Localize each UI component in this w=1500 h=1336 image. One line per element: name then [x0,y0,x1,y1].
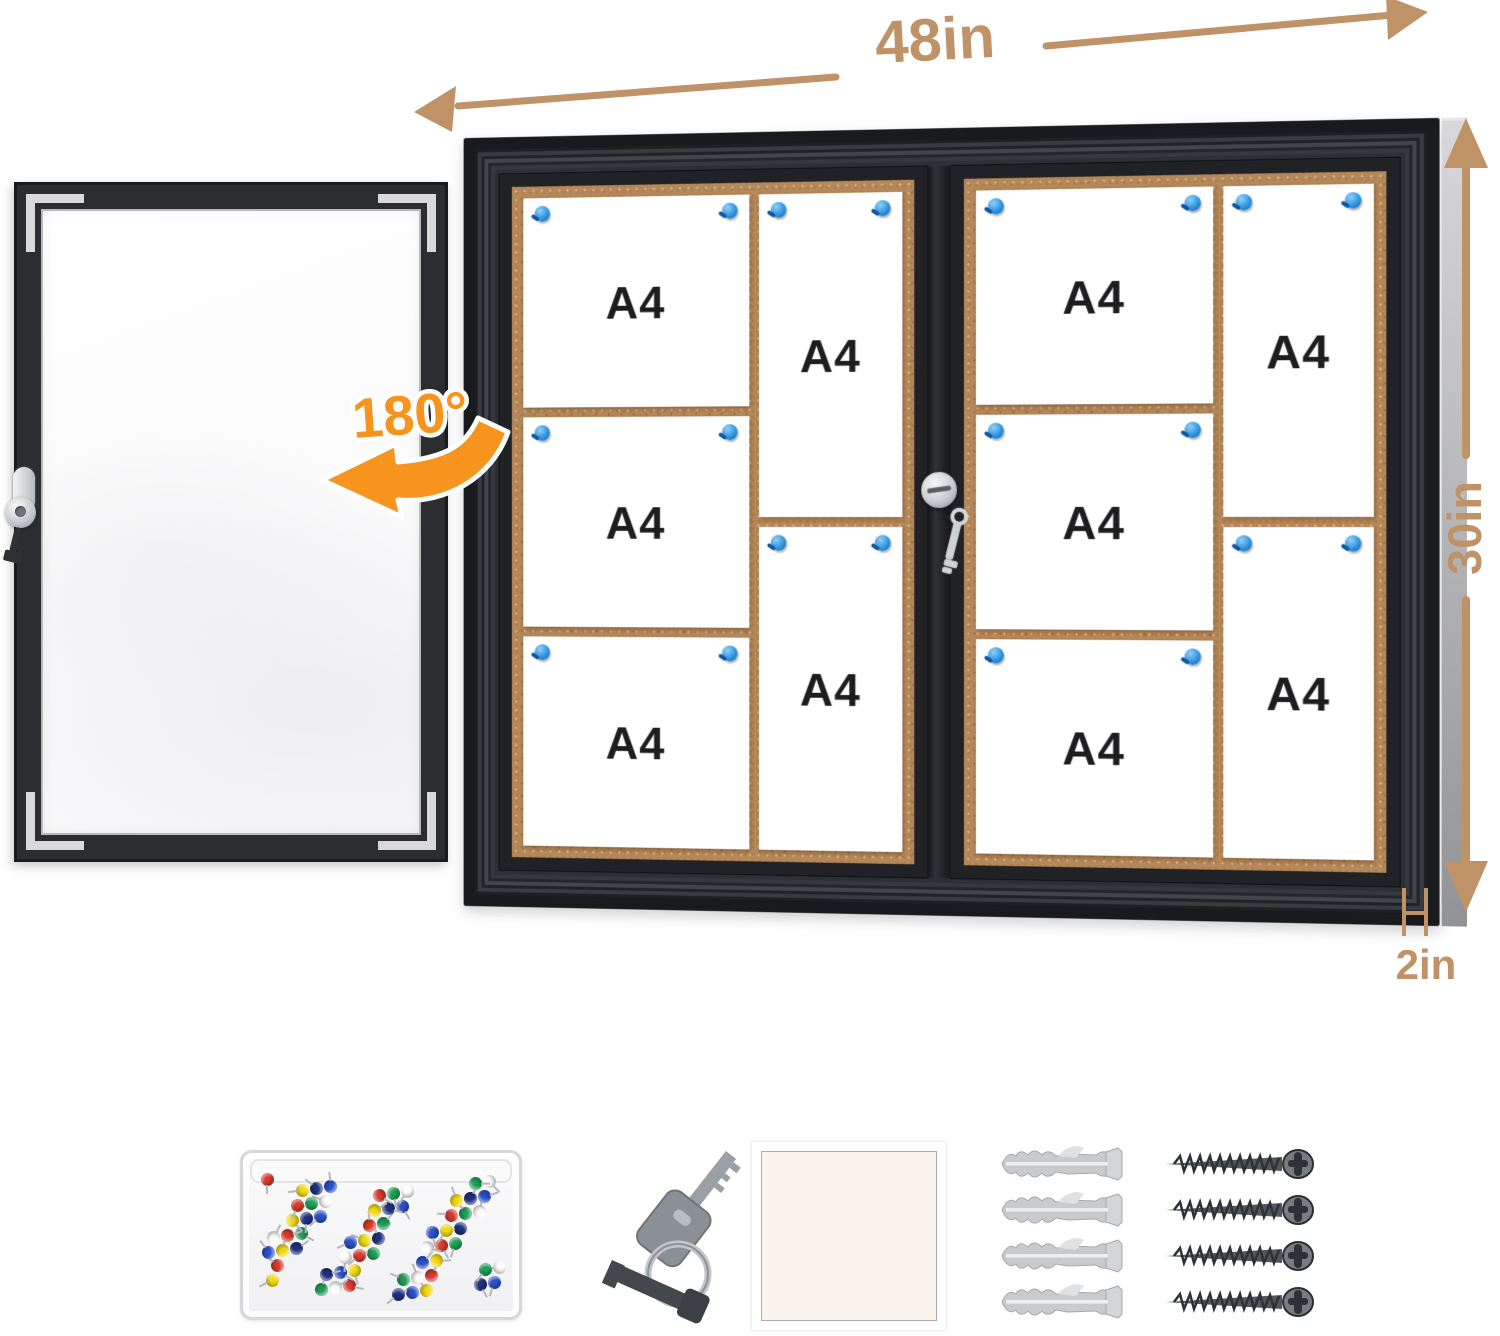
center-door-stile [927,166,951,878]
keys-icon [562,1122,762,1336]
wall-anchor-icon [996,1192,1130,1228]
push-pin-icon [287,1239,305,1257]
a4-paper: A4 [759,192,903,517]
push-pin-icon [423,1267,440,1284]
open-glass-door [14,182,448,862]
push-pin-icon [295,1183,310,1198]
push-pin-icon [405,1285,419,1299]
push-pin-icon [476,1188,493,1205]
paper-column: A4 A4 [1223,184,1374,861]
a4-paper: A4 [976,639,1213,857]
a4-paper: A4 [1223,527,1374,860]
a4-paper: A4 [1223,184,1374,517]
screw-icon [1160,1192,1328,1228]
push-pin-icon [722,645,738,661]
corner-bracket-icon [26,792,84,850]
paper-column: A4 A4 A4 [523,195,749,850]
push-pin-icon [323,1179,337,1193]
product-diagram: A4 A4 A4 [0,0,1500,1336]
push-pin-icon [367,1247,381,1261]
push-pin-icon [317,1193,334,1210]
a4-paper-label: A4 [1266,665,1330,722]
paper-column: A4 A4 [759,192,903,852]
push-pin-icon [326,1278,344,1296]
push-pin-icon [374,1214,392,1232]
push-pin-icon [492,1260,507,1275]
a4-paper: A4 [523,636,749,849]
push-pin-icon [417,1281,435,1299]
a4-paper-label: A4 [800,661,861,716]
cork-panel-left: A4 A4 A4 [500,166,928,877]
push-pin-icon [875,535,891,551]
push-pin-icon [430,1254,444,1268]
push-pin-icon [988,647,1004,663]
push-pin-icon [770,535,786,551]
a4-paper: A4 [976,186,1213,404]
push-pin-icon [261,1173,274,1186]
push-pin-icon [350,1246,368,1264]
push-pin-icon [988,423,1004,439]
a4-paper: A4 [759,527,903,852]
push-pin-icon [399,1183,417,1201]
push-pin-icon [279,1227,295,1243]
cork-panel-right: A4 A4 A4 [951,158,1400,887]
push-pin-icon [447,1235,463,1251]
bulletin-board-cabinet: A4 A4 A4 [464,117,1467,926]
push-pin-icon [370,1230,387,1247]
wall-anchor-icon [996,1284,1130,1320]
door-keyhole [15,506,26,517]
note-pad-sheet [761,1151,937,1321]
push-pin-icon [268,1256,286,1274]
a4-paper-label: A4 [1062,494,1125,549]
push-pin-icon [875,200,891,216]
push-pin-icon [1345,192,1362,209]
push-pin-icon [1184,422,1200,438]
push-pin-icon [1235,535,1251,551]
a4-paper-label: A4 [606,274,666,329]
push-pin-icon [472,1204,487,1219]
mounting-screws [1160,1146,1328,1320]
push-pin-icon [444,1208,458,1222]
push-pin-icon [535,206,550,222]
push-pin-icon [456,1204,474,1222]
screw-icon [1160,1284,1328,1320]
push-pin-icon [770,202,786,218]
screw-icon [1160,1146,1328,1182]
note-pad [752,1142,946,1330]
wall-anchors [996,1146,1130,1320]
a4-paper: A4 [523,195,749,408]
a4-paper-label: A4 [606,495,666,549]
a4-paper-label: A4 [800,327,861,382]
paper-column: A4 A4 A4 [976,186,1213,857]
a4-paper: A4 [523,416,749,628]
wall-anchor-icon [996,1238,1130,1274]
cork-sections: A4 A4 A4 [500,158,1400,887]
push-pin-icon [472,1276,490,1294]
push-pin-icon [1184,195,1200,211]
a4-paper: A4 [976,414,1213,631]
wall-anchor-icon [996,1146,1130,1182]
cabinet-lock [921,472,957,508]
push-pin-icon [722,424,738,440]
push-pin-icon [1345,535,1362,551]
screw-icon [1160,1238,1328,1274]
sliding-door-track: A4 A4 A4 [475,130,1427,913]
a4-paper-label: A4 [1062,720,1125,776]
door-glass [41,209,421,835]
depth-dimension-label: 2in [1378,944,1474,986]
a4-paper-label: A4 [1062,268,1125,324]
pushpin-box [240,1150,522,1320]
push-pin-icon [486,1274,502,1290]
push-pin-icon [389,1285,407,1303]
width-dimension-label: 48in [844,5,1027,74]
push-pin-icon [535,644,550,660]
a4-paper-label: A4 [1266,323,1330,380]
push-pin-icon [722,203,738,219]
push-pin-icon [314,1282,329,1297]
push-pin-icon [275,1243,290,1258]
push-pin-icon [469,1177,482,1190]
corner-bracket-icon [378,194,436,252]
push-pin-icon [1235,194,1251,211]
push-pin-icon [264,1272,281,1289]
push-pin-icon [311,1207,329,1225]
push-pin-icon [318,1266,334,1282]
push-pin-icon [988,198,1004,214]
corner-bracket-icon [26,194,84,252]
corner-bracket-icon [378,792,436,850]
push-pin-icon [535,425,550,441]
pushpin-box-pins [255,1169,507,1307]
door-key-icon [1,525,29,569]
a4-paper-label: A4 [606,715,666,770]
push-pin-icon [289,1197,305,1213]
push-pin-icon [1184,649,1200,665]
push-pin-icon [453,1221,468,1236]
height-dimension-label: 30in [1441,464,1491,592]
cabinet-front-frame: A4 A4 A4 [464,118,1440,926]
push-pin-icon [425,1225,441,1241]
